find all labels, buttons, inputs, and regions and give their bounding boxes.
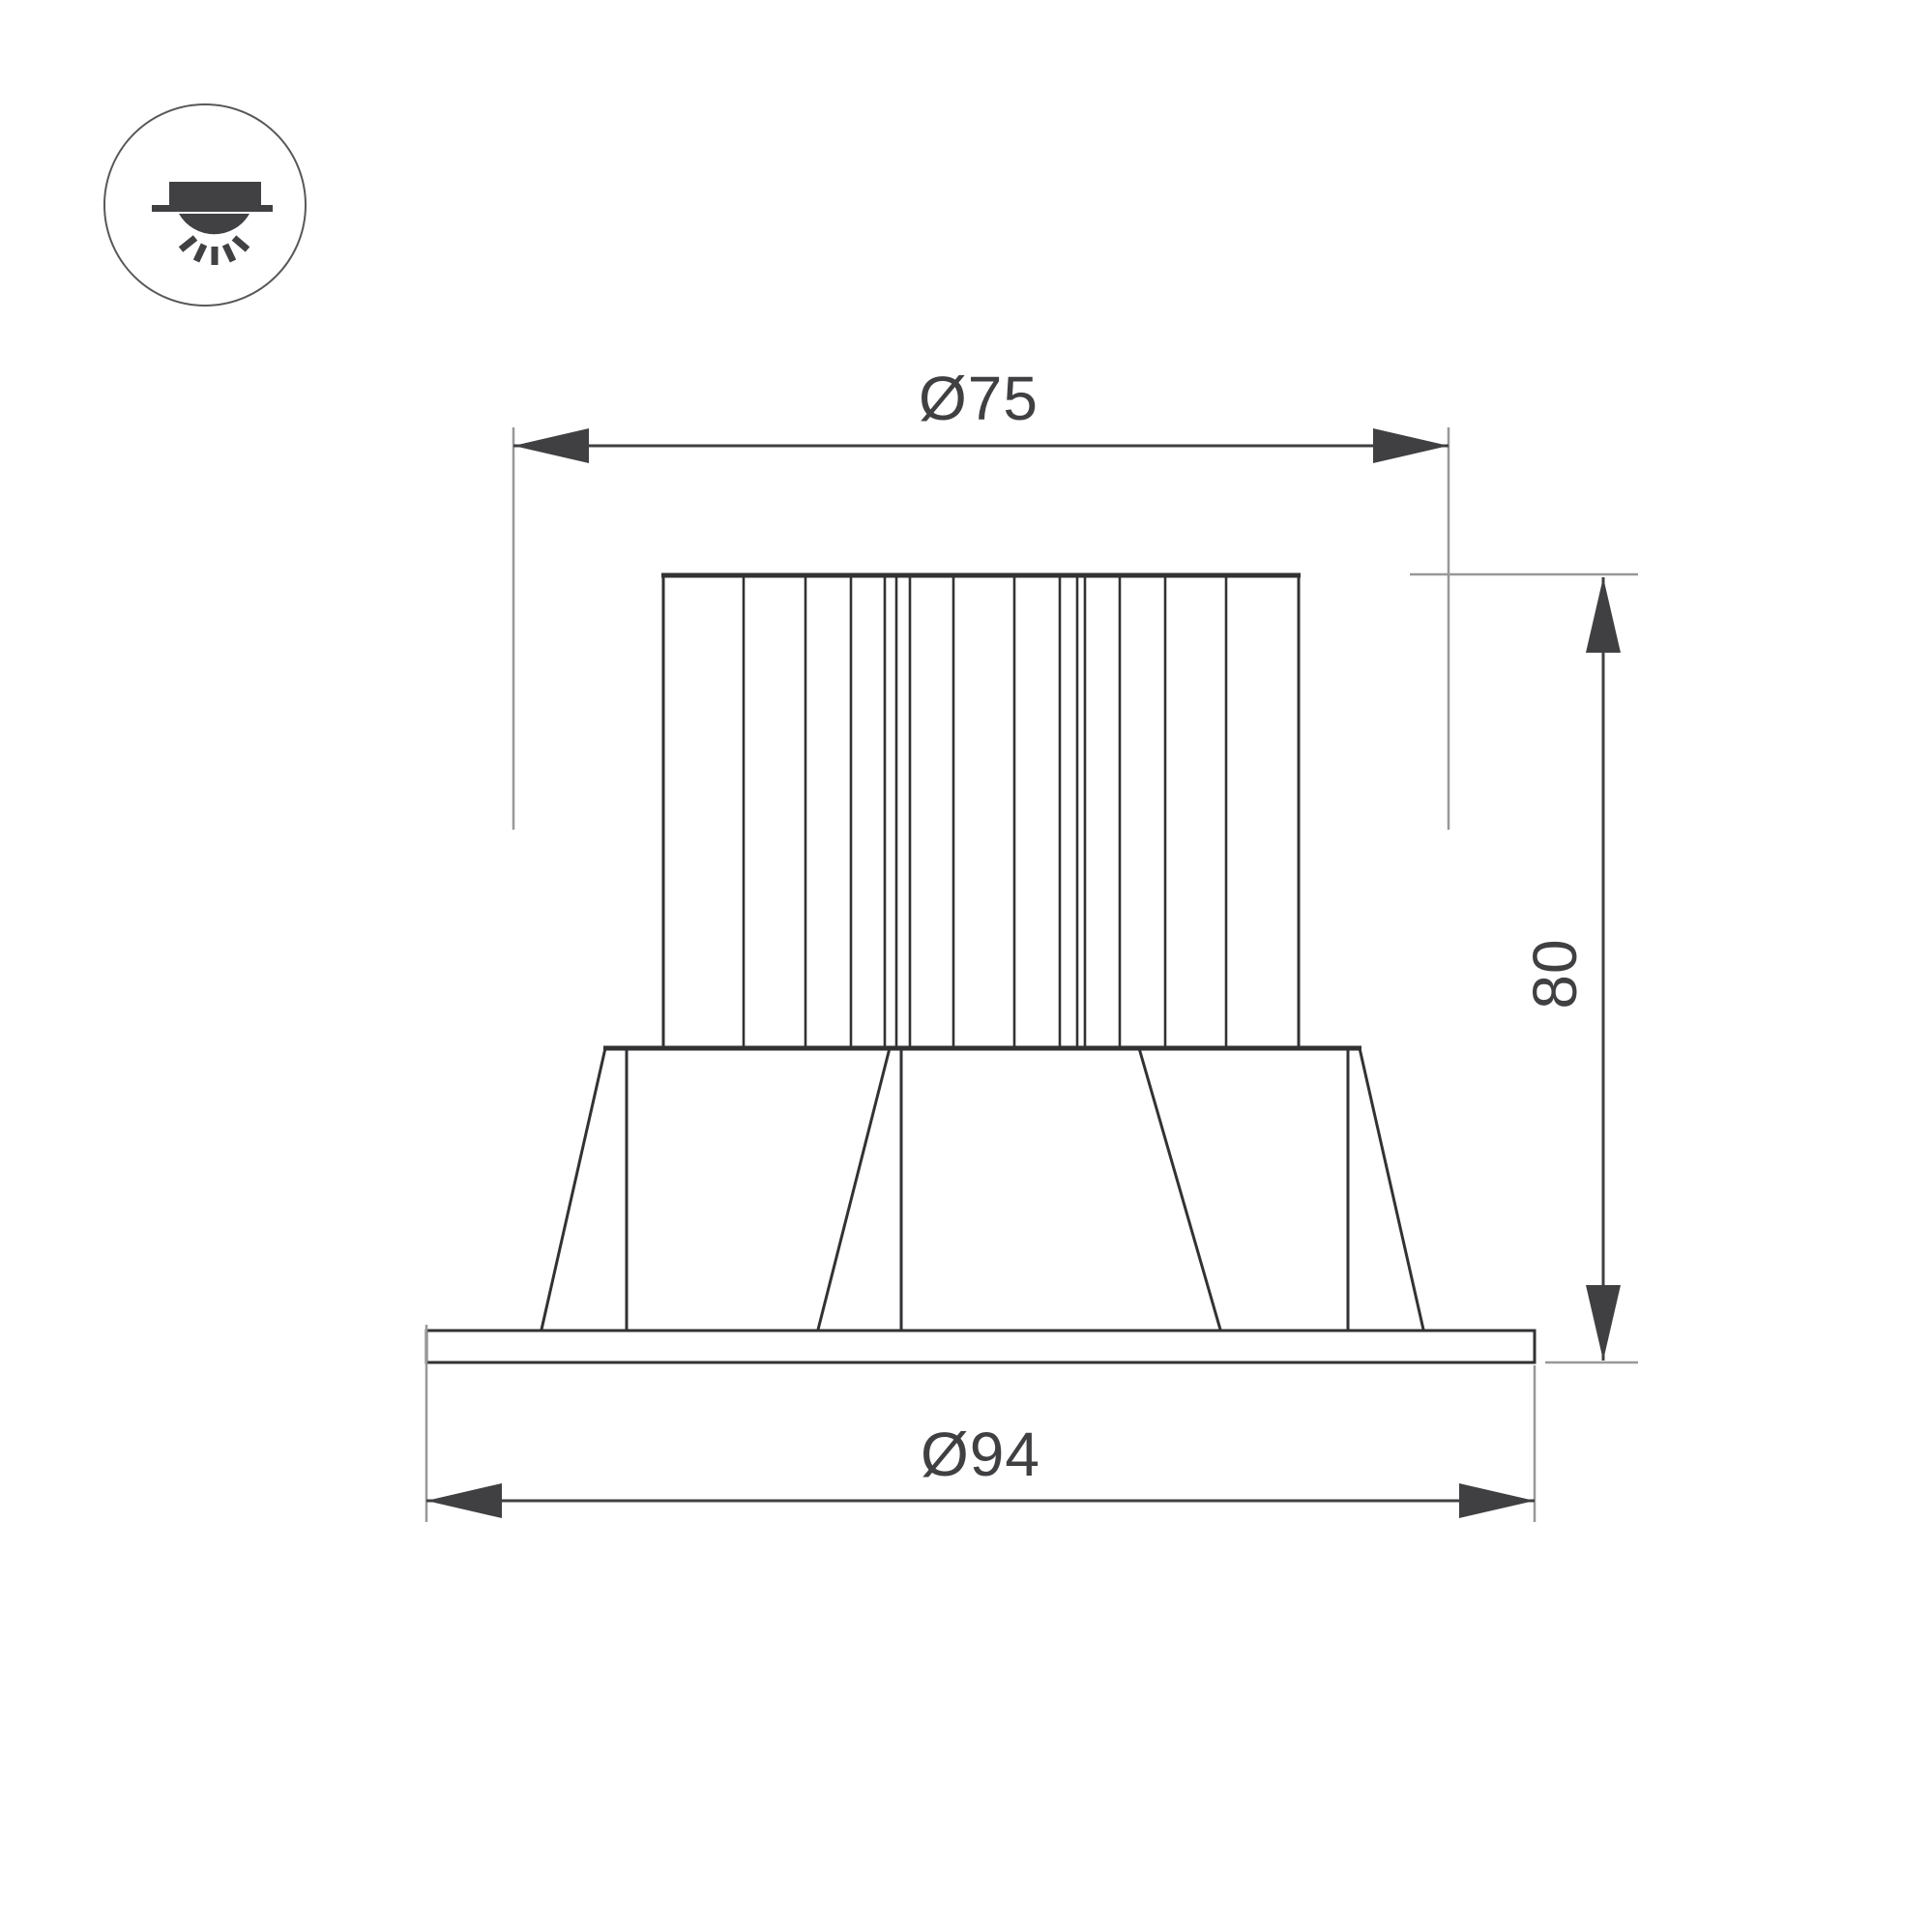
arrowhead-right xyxy=(1459,1483,1535,1518)
technical-drawing: Ø75 80 Ø94 xyxy=(0,0,1932,1932)
arrowhead-top xyxy=(1586,577,1621,653)
downlight-body-icon xyxy=(169,182,261,207)
trim-outer-left-slant xyxy=(542,1048,605,1330)
arrowhead-left xyxy=(426,1483,502,1518)
trim-inner-left-slant xyxy=(818,1048,890,1330)
dimension-bottom-diameter: Ø94 xyxy=(426,1325,1535,1522)
dimension-height: 80 xyxy=(1410,574,1638,1362)
arrowhead-right xyxy=(1373,428,1449,463)
trim-body xyxy=(542,1048,1423,1330)
mount-type-icon xyxy=(104,104,306,306)
light-ray xyxy=(234,238,248,249)
light-ray xyxy=(196,245,204,261)
light-ray xyxy=(225,245,233,261)
trim-inner-right-slant xyxy=(1139,1048,1220,1330)
light-ray xyxy=(181,238,195,249)
height-label: 80 xyxy=(1520,938,1590,1009)
light-rays-icon xyxy=(181,238,248,265)
downlight-flange-icon xyxy=(152,205,273,212)
bottom-diameter-label: Ø94 xyxy=(921,1420,1040,1489)
arrowhead-bottom xyxy=(1586,1285,1621,1361)
trim-outer-right-slant xyxy=(1360,1048,1423,1330)
top-diameter-label: Ø75 xyxy=(919,364,1039,433)
dimension-top-diameter: Ø75 xyxy=(513,364,1449,830)
drawing-canvas: Ø75 80 Ø94 xyxy=(0,0,1932,1932)
downlight-lens-icon xyxy=(179,214,249,234)
arrowhead-left xyxy=(513,428,589,463)
flange xyxy=(426,1331,1535,1362)
heatsink xyxy=(661,575,1301,1048)
